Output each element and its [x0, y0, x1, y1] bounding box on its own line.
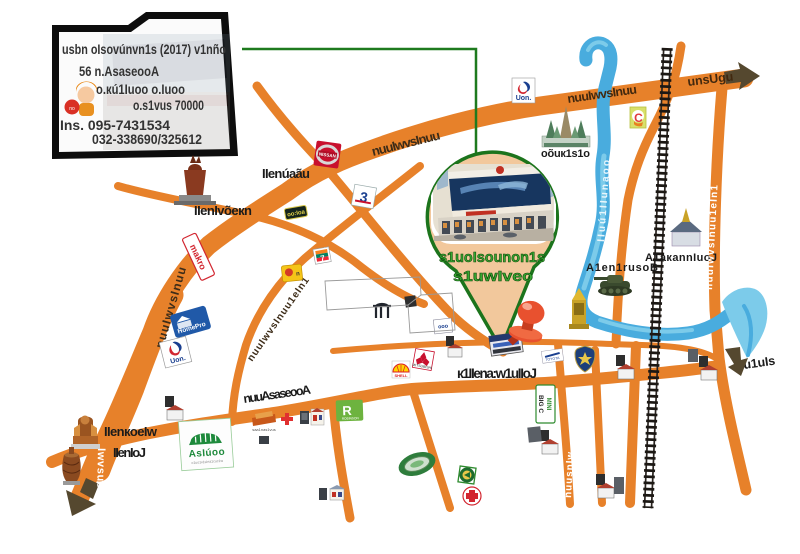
svg-text:no: no	[69, 106, 75, 112]
svg-text:s1uoIsounon1s: s1uoIsounon1s	[439, 249, 545, 266]
svg-text:Iwvsus: Iwvsus	[94, 448, 107, 488]
svg-text:SHELL: SHELL	[394, 373, 408, 378]
svg-text:A1en1rusoB: A1en1rusoB	[586, 262, 658, 274]
svg-text:032-338690/325612: 032-338690/325612	[92, 131, 202, 147]
svg-text:s1uwIveo: s1uwIveo	[453, 268, 533, 285]
svg-text:o.s1vus 70000: o.s1vus 70000	[133, 97, 204, 113]
svg-text:usbn oIsovúnvn1s (2017) v1nño: usbn oIsovúnvn1s (2017) v1nño	[62, 41, 226, 57]
svg-text:IIenIvõeкn: IIenIvõeкn	[194, 203, 252, 218]
svg-text:BIG C: BIG C	[537, 395, 544, 413]
svg-text:MINI: MINI	[545, 398, 551, 411]
svg-text:o.кú1Iuoo o.Iuoo: o.кú1Iuoo o.Iuoo	[96, 81, 185, 97]
svg-text:IIenкoeIw: IIenкoeIw	[104, 424, 158, 439]
svg-text:Uon.: Uon.	[516, 95, 532, 102]
svg-text:saa1nas1vus: saa1nas1vus	[252, 427, 276, 432]
svg-text:ROBINSON: ROBINSON	[342, 416, 360, 421]
svg-text:56 n.AsaseooA: 56 n.AsaseooA	[79, 63, 159, 79]
svg-text:oõuк1s1o: oõuк1s1o	[541, 148, 590, 160]
svg-text:ooo: ooo	[438, 323, 449, 330]
svg-text:к1IIena:w1uIIoJ: к1IIena:w1uIIoJ	[457, 366, 537, 381]
svg-text:IIenúaãu: IIenúaãu	[262, 166, 310, 181]
svg-text:IIenIoJ: IIenIoJ	[113, 445, 146, 460]
